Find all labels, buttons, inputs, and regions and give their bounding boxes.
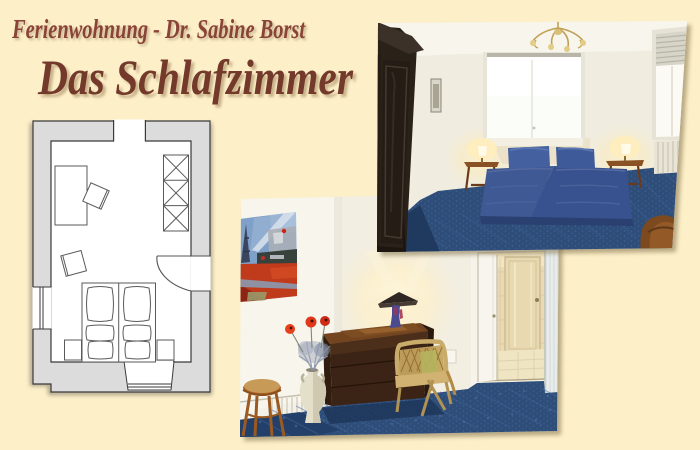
svg-text:Ferienwohnung - Dr. Sabine Bor: Ferienwohnung - Dr. Sabine Borst bbox=[11, 14, 306, 44]
svg-text:Das Schlafzimmer: Das Schlafzimmer bbox=[37, 49, 353, 105]
